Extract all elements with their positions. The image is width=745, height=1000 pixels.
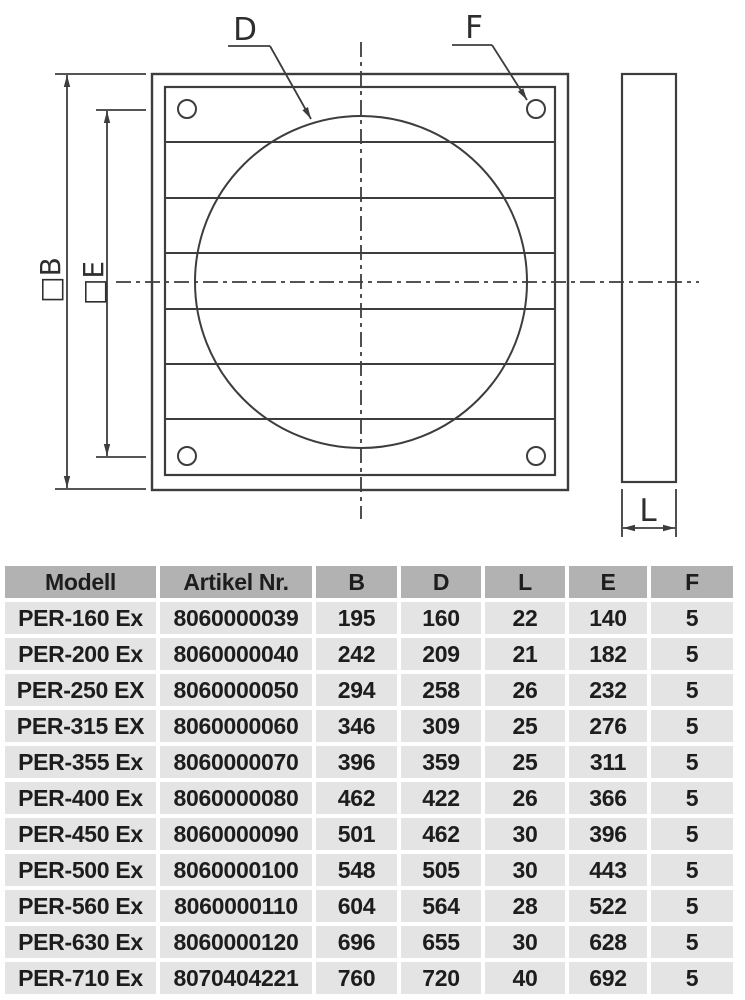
cell-e: 140 <box>569 602 647 634</box>
cell-model: PER-450 Ex <box>5 818 156 850</box>
cell-b: 501 <box>316 818 397 850</box>
cell-model: PER-630 Ex <box>5 926 156 958</box>
cell-d: 655 <box>401 926 481 958</box>
dim-label-b: □B <box>34 257 67 303</box>
col-header-b: B <box>316 566 397 598</box>
cell-model: PER-400 Ex <box>5 782 156 814</box>
cell-d: 309 <box>401 710 481 742</box>
corner-hole-bottom-right <box>527 447 545 465</box>
cell-f: 5 <box>651 602 733 634</box>
cell-artikel: 8060000120 <box>160 926 312 958</box>
cell-f: 5 <box>651 782 733 814</box>
cell-model: PER-355 Ex <box>5 746 156 778</box>
cell-f: 5 <box>651 674 733 706</box>
cell-b: 396 <box>316 746 397 778</box>
cell-d: 462 <box>401 818 481 850</box>
cell-model: PER-160 Ex <box>5 602 156 634</box>
side-view-profile <box>622 74 676 482</box>
cell-artikel: 8060000040 <box>160 638 312 670</box>
leader-d <box>228 46 311 119</box>
cell-e: 628 <box>569 926 647 958</box>
dim-label-d: D <box>233 12 257 48</box>
cell-e: 311 <box>569 746 647 778</box>
cell-model: PER-500 Ex <box>5 854 156 886</box>
cell-artikel: 8060000100 <box>160 854 312 886</box>
cell-artikel: 8060000060 <box>160 710 312 742</box>
col-header-f: F <box>651 566 733 598</box>
cell-l: 26 <box>485 674 565 706</box>
cell-f: 5 <box>651 854 733 886</box>
cell-b: 760 <box>316 962 397 994</box>
cell-model: PER-200 Ex <box>5 638 156 670</box>
cell-l: 22 <box>485 602 565 634</box>
cell-artikel: 8060000110 <box>160 890 312 922</box>
cell-e: 396 <box>569 818 647 850</box>
cell-artikel: 8060000080 <box>160 782 312 814</box>
col-header-artikel: Artikel Nr. <box>160 566 312 598</box>
cell-d: 359 <box>401 746 481 778</box>
cell-b: 696 <box>316 926 397 958</box>
cell-d: 720 <box>401 962 481 994</box>
col-header-l: L <box>485 566 565 598</box>
cell-d: 422 <box>401 782 481 814</box>
cell-f: 5 <box>651 890 733 922</box>
cell-b: 604 <box>316 890 397 922</box>
dim-label-f: F <box>465 10 483 46</box>
cell-f: 5 <box>651 746 733 778</box>
cell-l: 21 <box>485 638 565 670</box>
dimension-table: Modell Artikel Nr. B D L E F PER-160 Ex … <box>5 566 733 994</box>
leader-f <box>452 45 527 100</box>
cell-d: 505 <box>401 854 481 886</box>
cell-l: 40 <box>485 962 565 994</box>
inner-frame <box>165 87 555 475</box>
cell-e: 522 <box>569 890 647 922</box>
cell-artikel: 8060000070 <box>160 746 312 778</box>
corner-hole-top-left <box>178 100 196 118</box>
cell-f: 5 <box>651 818 733 850</box>
cell-model: PER-250 EX <box>5 674 156 706</box>
shutter-drawing-svg: D F □B □E L <box>0 0 745 560</box>
cell-l: 30 <box>485 926 565 958</box>
cell-f: 5 <box>651 926 733 958</box>
cell-artikel: 8060000039 <box>160 602 312 634</box>
cell-l: 30 <box>485 854 565 886</box>
col-header-d: D <box>401 566 481 598</box>
catalog-page: { "diagram": { "labels": { "d": "D", "f"… <box>0 0 745 1000</box>
cell-e: 443 <box>569 854 647 886</box>
cell-model: PER-560 Ex <box>5 890 156 922</box>
cell-f: 5 <box>651 638 733 670</box>
cell-b: 294 <box>316 674 397 706</box>
cell-f: 5 <box>651 710 733 742</box>
cell-e: 692 <box>569 962 647 994</box>
col-header-e: E <box>569 566 647 598</box>
cell-model: PER-315 EX <box>5 710 156 742</box>
cell-e: 366 <box>569 782 647 814</box>
cell-b: 346 <box>316 710 397 742</box>
cell-artikel: 8060000050 <box>160 674 312 706</box>
cell-e: 276 <box>569 710 647 742</box>
dim-label-l: L <box>639 493 657 529</box>
cell-l: 26 <box>485 782 565 814</box>
cell-b: 195 <box>316 602 397 634</box>
cell-f: 5 <box>651 962 733 994</box>
cell-l: 25 <box>485 746 565 778</box>
technical-drawing: D F □B □E L <box>0 0 745 560</box>
cell-b: 242 <box>316 638 397 670</box>
cell-model: PER-710 Ex <box>5 962 156 994</box>
col-header-modell: Modell <box>5 566 156 598</box>
dim-label-e: □E <box>77 261 110 305</box>
cell-b: 548 <box>316 854 397 886</box>
cell-d: 258 <box>401 674 481 706</box>
cell-l: 25 <box>485 710 565 742</box>
cell-d: 209 <box>401 638 481 670</box>
cell-d: 564 <box>401 890 481 922</box>
cell-l: 30 <box>485 818 565 850</box>
cell-l: 28 <box>485 890 565 922</box>
cell-b: 462 <box>316 782 397 814</box>
cell-d: 160 <box>401 602 481 634</box>
cell-artikel: 8070404221 <box>160 962 312 994</box>
cell-artikel: 8060000090 <box>160 818 312 850</box>
cell-e: 182 <box>569 638 647 670</box>
corner-hole-top-right <box>527 100 545 118</box>
corner-hole-bottom-left <box>178 447 196 465</box>
cell-e: 232 <box>569 674 647 706</box>
